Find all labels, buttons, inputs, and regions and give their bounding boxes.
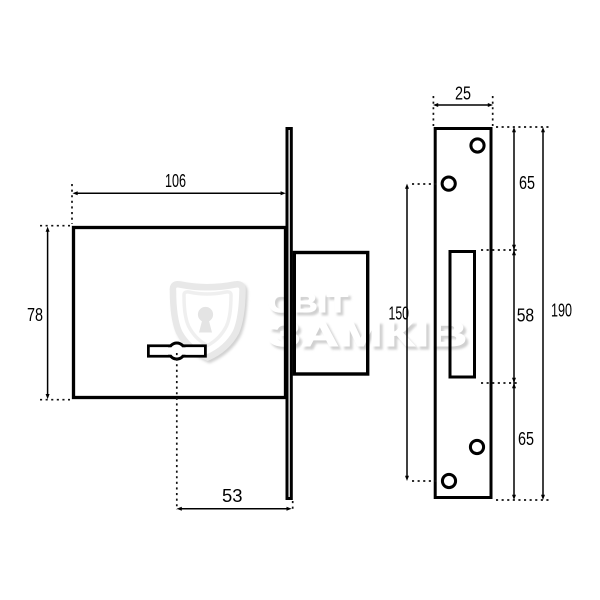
svg-text:150: 150 (389, 304, 410, 324)
svg-text:25: 25 (455, 84, 471, 104)
svg-text:СВІТ: СВІТ (268, 288, 349, 318)
svg-text:106: 106 (165, 171, 186, 191)
svg-text:53: 53 (222, 486, 243, 506)
svg-text:78: 78 (27, 305, 43, 325)
svg-text:65: 65 (519, 173, 535, 193)
svg-text:58: 58 (517, 306, 535, 326)
svg-text:65: 65 (518, 429, 534, 449)
svg-text:190: 190 (551, 301, 572, 321)
